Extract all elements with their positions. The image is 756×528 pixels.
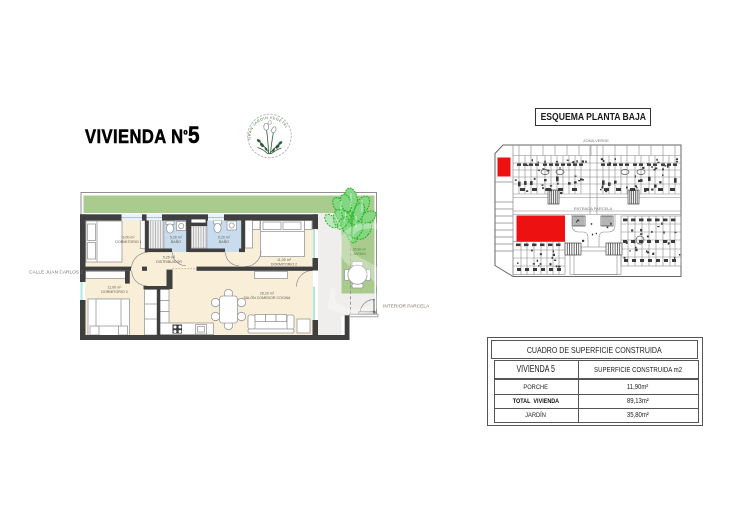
svg-text:26,20 m²: 26,20 m² — [260, 292, 275, 296]
svg-text:BAÑO: BAÑO — [171, 239, 181, 244]
svg-text:DORMITORIO 3: DORMITORIO 3 — [101, 290, 127, 294]
svg-text:DORMITORIO 1: DORMITORIO 1 — [115, 240, 141, 244]
svg-text:5,20 m²: 5,20 m² — [218, 236, 231, 240]
svg-text:CALLE JUAN CARLOS 1: CALLE JUAN CARLOS 1 — [29, 270, 83, 276]
svg-text:DISTRIBUIDOR: DISTRIBUIDOR — [156, 260, 182, 264]
svg-text:ZONA VERDE: ZONA VERDE — [583, 138, 609, 143]
svg-text:5,20 m²: 5,20 m² — [170, 236, 183, 240]
svg-text:INTERIOR PARCELA: INTERIOR PARCELA — [383, 304, 430, 310]
svg-text:9,00 m²: 9,00 m² — [122, 236, 135, 240]
svg-text:BAÑO: BAÑO — [219, 239, 229, 244]
svg-text:SALÓN COMEDOR COCINA: SALÓN COMEDOR COCINA — [244, 295, 292, 300]
svg-text:35,80 m²: 35,80 m² — [353, 248, 367, 252]
svg-text:S: S — [326, 193, 394, 343]
svg-text:JARDIN: JARDIN — [353, 252, 366, 256]
svg-text:DORMITORIO 2: DORMITORIO 2 — [271, 263, 297, 267]
svg-text:ENTRADA PARCELA: ENTRADA PARCELA — [574, 206, 613, 211]
svg-text:11,00 m²: 11,00 m² — [277, 258, 292, 262]
svg-text:5,25 m²: 5,25 m² — [163, 256, 176, 260]
svg-text:11,00 m²: 11,00 m² — [108, 286, 123, 290]
